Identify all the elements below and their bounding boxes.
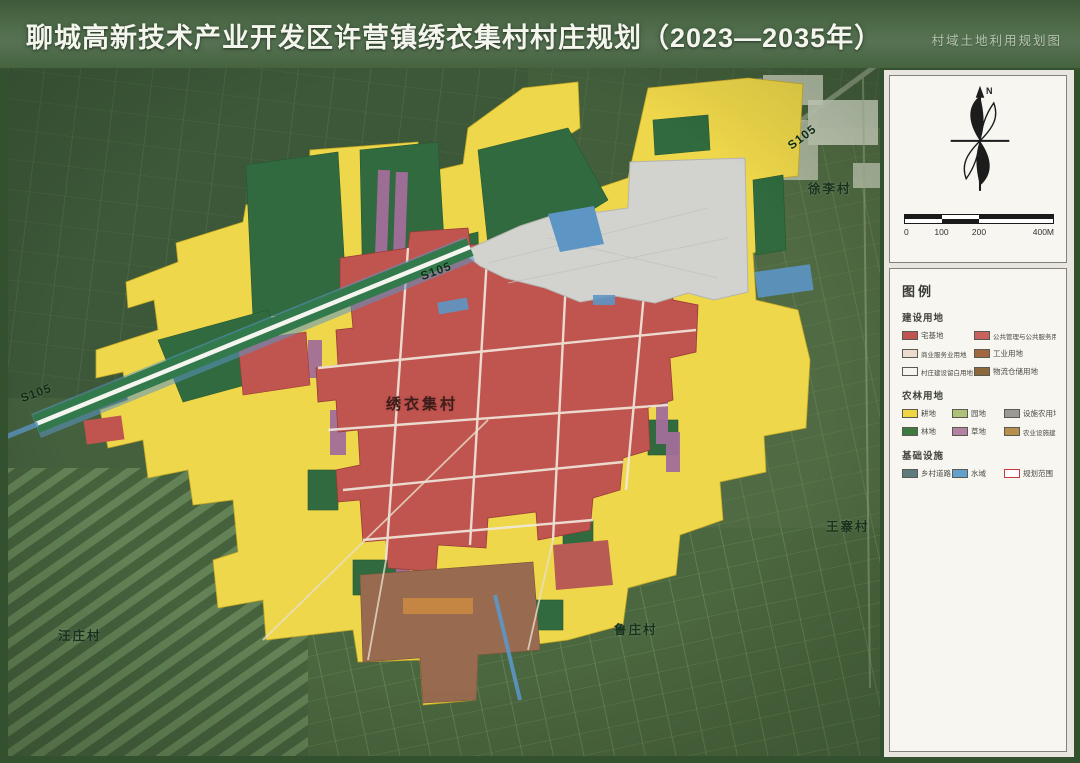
legend-swatch [1004,427,1020,436]
page-title: 聊城高新技术产业开发区许营镇绣衣集村村庄规划（2023—2035年） [26,16,876,55]
compass-north-label: N [986,86,993,96]
plan-photo: 聊城高新技术产业开发区许营镇绣衣集村村庄规划（2023—2035年） 村域土地利… [0,0,1080,763]
legend: 图例 建设用地 宅基地 公共管理与公共服务用地 商业服务业用地 [889,268,1067,752]
side-panel: N 0 100 200 [884,70,1074,757]
legend-label: 物流仓储用地 [993,366,1038,377]
legend-swatch [902,469,918,478]
village-label-right: 王寨村 [826,516,870,535]
village-label-bottomleft: 汪庄村 [58,625,102,644]
village-label-topright: 徐李村 [808,178,852,197]
legend-label: 工业用地 [993,348,1023,359]
legend-swatch [902,331,918,340]
legend-group-title: 建设用地 [902,310,1056,324]
legend-swatch [1004,409,1020,418]
legend-label: 草地 [971,426,986,437]
legend-item: 园地 [952,408,1004,419]
legend-item: 宅基地 [902,330,974,341]
legend-label: 商业服务业用地 [921,349,967,359]
scale-tick: 200 [972,227,986,237]
legend-label: 农业设施建设用地 [1023,427,1056,437]
legend-item: 水域 [952,468,1004,479]
legend-swatch [952,409,968,418]
legend-label: 规划范围 [1023,468,1053,479]
legend-item: 物流仓储用地 [974,366,1056,377]
legend-item: 工业用地 [974,348,1056,359]
legend-group-title: 农林用地 [902,388,1056,402]
legend-group-infrastructure: 基础设施 乡村道路 水域 规划范围 [902,448,1056,479]
legend-item: 草地 [952,426,1004,437]
legend-swatch [902,427,918,436]
scale-bar-ticks: 0 100 200 400M [904,227,1054,240]
legend-title: 图例 [902,281,1056,300]
legend-label: 水域 [971,468,986,479]
legend-label: 设施农用地 [1023,408,1056,419]
scale-bar-segments [904,214,1054,224]
legend-label: 公共管理与公共服务用地 [993,331,1056,341]
compass-icon [940,84,1020,196]
legend-group-title: 基础设施 [902,448,1056,462]
legend-label: 乡村道路 [921,468,951,479]
legend-swatch-plan-boundary [1004,469,1020,478]
scale-tick: 100 [934,227,948,237]
legend-swatch [974,331,990,340]
village-label-bottom: 鲁庄村 [614,619,658,638]
legend-swatch [902,409,918,418]
legend-item: 农业设施建设用地 [1004,426,1056,437]
map-title-bar: 聊城高新技术产业开发区许营镇绣衣集村村庄规划（2023—2035年） 村域土地利… [0,0,1080,68]
legend-swatch [952,469,968,478]
legend-label: 村庄建设留白用地 [921,367,973,377]
legend-item: 村庄建设留白用地 [902,366,974,377]
compass-scale-box: N 0 100 200 [889,75,1067,263]
legend-item: 设施农用地 [1004,408,1056,419]
legend-swatch [974,367,990,376]
legend-item: 公共管理与公共服务用地 [974,330,1056,341]
corner-note: 村域土地利用规划图 [931,30,1062,49]
map-canvas: S105 S105 S105 绣衣集村 徐李村 王寨村 鲁庄村 汪庄村 [8,68,880,756]
legend-swatch [974,349,990,358]
legend-swatch [952,427,968,436]
legend-swatch [902,349,918,358]
legend-label: 林地 [921,426,936,437]
scale-bar: 0 100 200 400M [904,214,1054,240]
legend-label: 耕地 [921,408,936,419]
legend-item: 耕地 [902,408,952,419]
legend-item: 商业服务业用地 [902,348,974,359]
legend-swatch [902,367,918,376]
legend-item: 规划范围 [1004,468,1056,479]
legend-group-agriculture: 农林用地 耕地 园地 设施农用地 [902,388,1056,437]
legend-item: 林地 [902,426,952,437]
legend-label: 园地 [971,408,986,419]
scale-tick: 0 [904,227,909,237]
scale-tick: 400M [1033,227,1054,237]
legend-label: 宅基地 [921,330,944,341]
legend-group-construction: 建设用地 宅基地 公共管理与公共服务用地 商业服务业用地 [902,310,1056,377]
legend-item: 乡村道路 [902,468,952,479]
village-label-xiuyiji: 绣衣集村 [386,393,458,414]
